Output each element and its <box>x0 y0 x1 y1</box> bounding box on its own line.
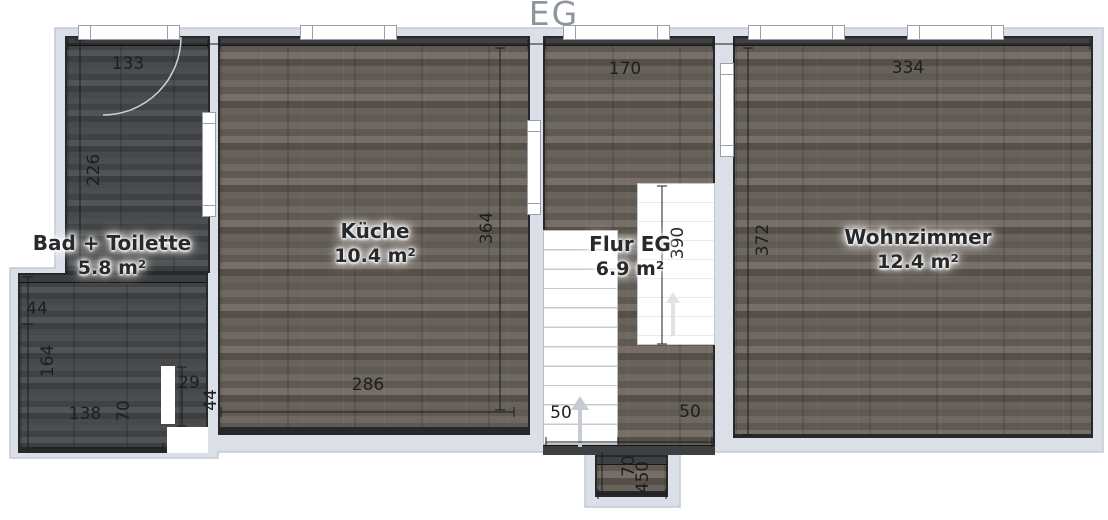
door-element <box>202 112 216 217</box>
dimension-label: 226 <box>84 154 104 186</box>
window <box>563 25 670 40</box>
room-label-flur: Flur EG 6.9 m² <box>589 232 671 282</box>
room-name: Wohnzimmer <box>844 225 991 250</box>
dimension-label: 450 <box>633 461 653 493</box>
door-element <box>527 120 541 215</box>
window <box>748 25 845 40</box>
dimension-label: 334 <box>892 58 924 78</box>
dimension-label: 364 <box>477 212 497 244</box>
room-area: 12.4 m² <box>844 250 991 275</box>
window <box>300 25 397 40</box>
window <box>907 25 1004 40</box>
room-area: 5.8 m² <box>33 256 191 281</box>
room-label-kueche: Küche 10.4 m² <box>334 219 416 269</box>
dimension-label: 44 <box>26 299 48 319</box>
dimension-label: 138 <box>69 404 101 424</box>
stairs-upper-arrow-icon <box>666 292 680 303</box>
door-element <box>720 63 734 157</box>
wall-cutout <box>167 427 208 453</box>
floor-plan: EG 133 226 44 164 138 70 29 44 286 364 1… <box>0 0 1108 520</box>
dimension-label: 70 <box>114 400 134 422</box>
wall-niche <box>161 366 175 424</box>
dimension-label: 286 <box>352 375 384 395</box>
room-name: Küche <box>334 219 416 244</box>
dimension-label: 133 <box>112 54 144 74</box>
room-label-bad: Bad + Toilette 5.8 m² <box>33 231 191 281</box>
room-label-wohnzimmer: Wohnzimmer 12.4 m² <box>844 225 991 275</box>
dimension-label: 50 <box>679 402 701 422</box>
dimension-label: 50 <box>550 403 572 423</box>
room-area: 10.4 m² <box>334 244 416 269</box>
dimension-label: 372 <box>753 224 773 256</box>
room-name: Bad + Toilette <box>33 231 191 256</box>
dimension-label: 170 <box>609 59 641 79</box>
room-area: 6.9 m² <box>589 257 671 282</box>
dimension-label: 164 <box>38 345 58 377</box>
wall <box>543 445 715 455</box>
dimension-label: 29 <box>178 373 200 393</box>
room-name: Flur EG <box>589 232 671 257</box>
dimension-label: 44 <box>201 389 221 411</box>
window <box>78 25 180 40</box>
stairs-up-arrow-icon <box>571 396 589 410</box>
